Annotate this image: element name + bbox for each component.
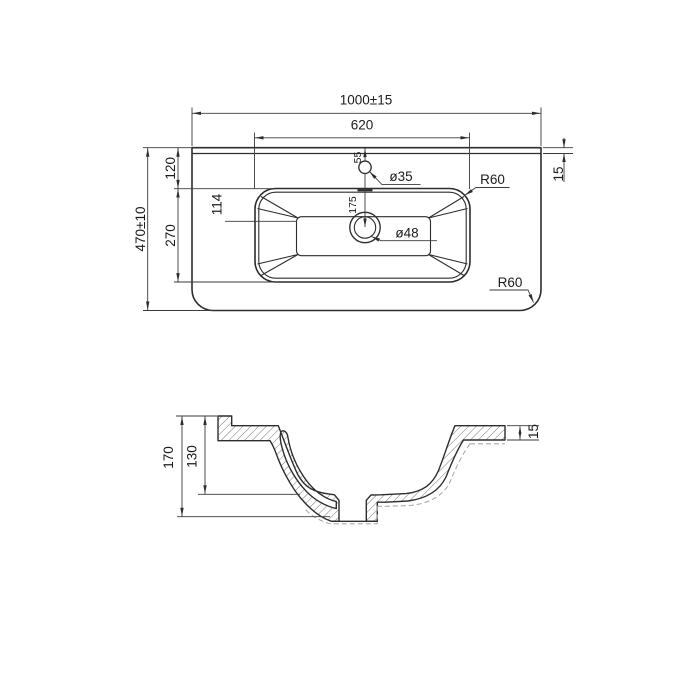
dim-basin-depth-label: 130 — [185, 445, 200, 468]
dim-counter-corner-radius: R60 — [490, 275, 536, 303]
dim-rim-to-basin-label: 120 — [163, 157, 178, 180]
section-right-wall — [366, 426, 505, 522]
dim-back-edge-thickness-label: 15 — [551, 166, 566, 181]
dim-drain-hole-label: ø48 — [395, 225, 418, 240]
dim-overall-height-label: 170 — [161, 446, 176, 469]
top-view: 1000±15 620 470±10 — [133, 93, 573, 311]
dim-basin-front-back-label: 270 — [163, 224, 178, 247]
basin-inner-rim — [259, 192, 466, 278]
dim-basin-width-label: 620 — [351, 118, 374, 133]
basin-outer-rim — [255, 189, 470, 283]
dim-bottom-flat-label: 114 — [210, 193, 225, 215]
dim-bottom-flat: 114 — [210, 193, 298, 221]
dim-rim-thickness-label: 15 — [526, 424, 541, 439]
dim-basin-corner-radius-label: R60 — [480, 172, 505, 187]
dim-counter-corner-radius-label: R60 — [498, 275, 523, 290]
dim-back-edge-thickness: 15 — [543, 138, 573, 182]
dim-faucet-to-drain: 175 — [347, 174, 367, 228]
section-view: 170 130 15 — [161, 416, 541, 524]
dim-faucet-from-edge-label: 55 — [352, 152, 364, 164]
dim-overall-width-label: 1000±15 — [340, 93, 392, 108]
bowl-corner-transition-lines — [258, 197, 468, 276]
dim-overall-depth-label: 470±10 — [133, 207, 148, 252]
dim-faucet-hole: ø35 — [368, 169, 420, 185]
section-left-wall — [218, 416, 339, 521]
dim-basin-corner-radius: R60 — [464, 172, 510, 197]
technical-drawing-page: 1000±15 620 470±10 — [0, 0, 700, 700]
dim-faucet-hole-label: ø35 — [389, 169, 412, 184]
dim-faucet-to-drain-label: 175 — [347, 196, 359, 214]
dim-rim-thickness: 15 — [507, 424, 541, 440]
washbasin-drawing: 1000±15 620 470±10 — [0, 0, 700, 700]
